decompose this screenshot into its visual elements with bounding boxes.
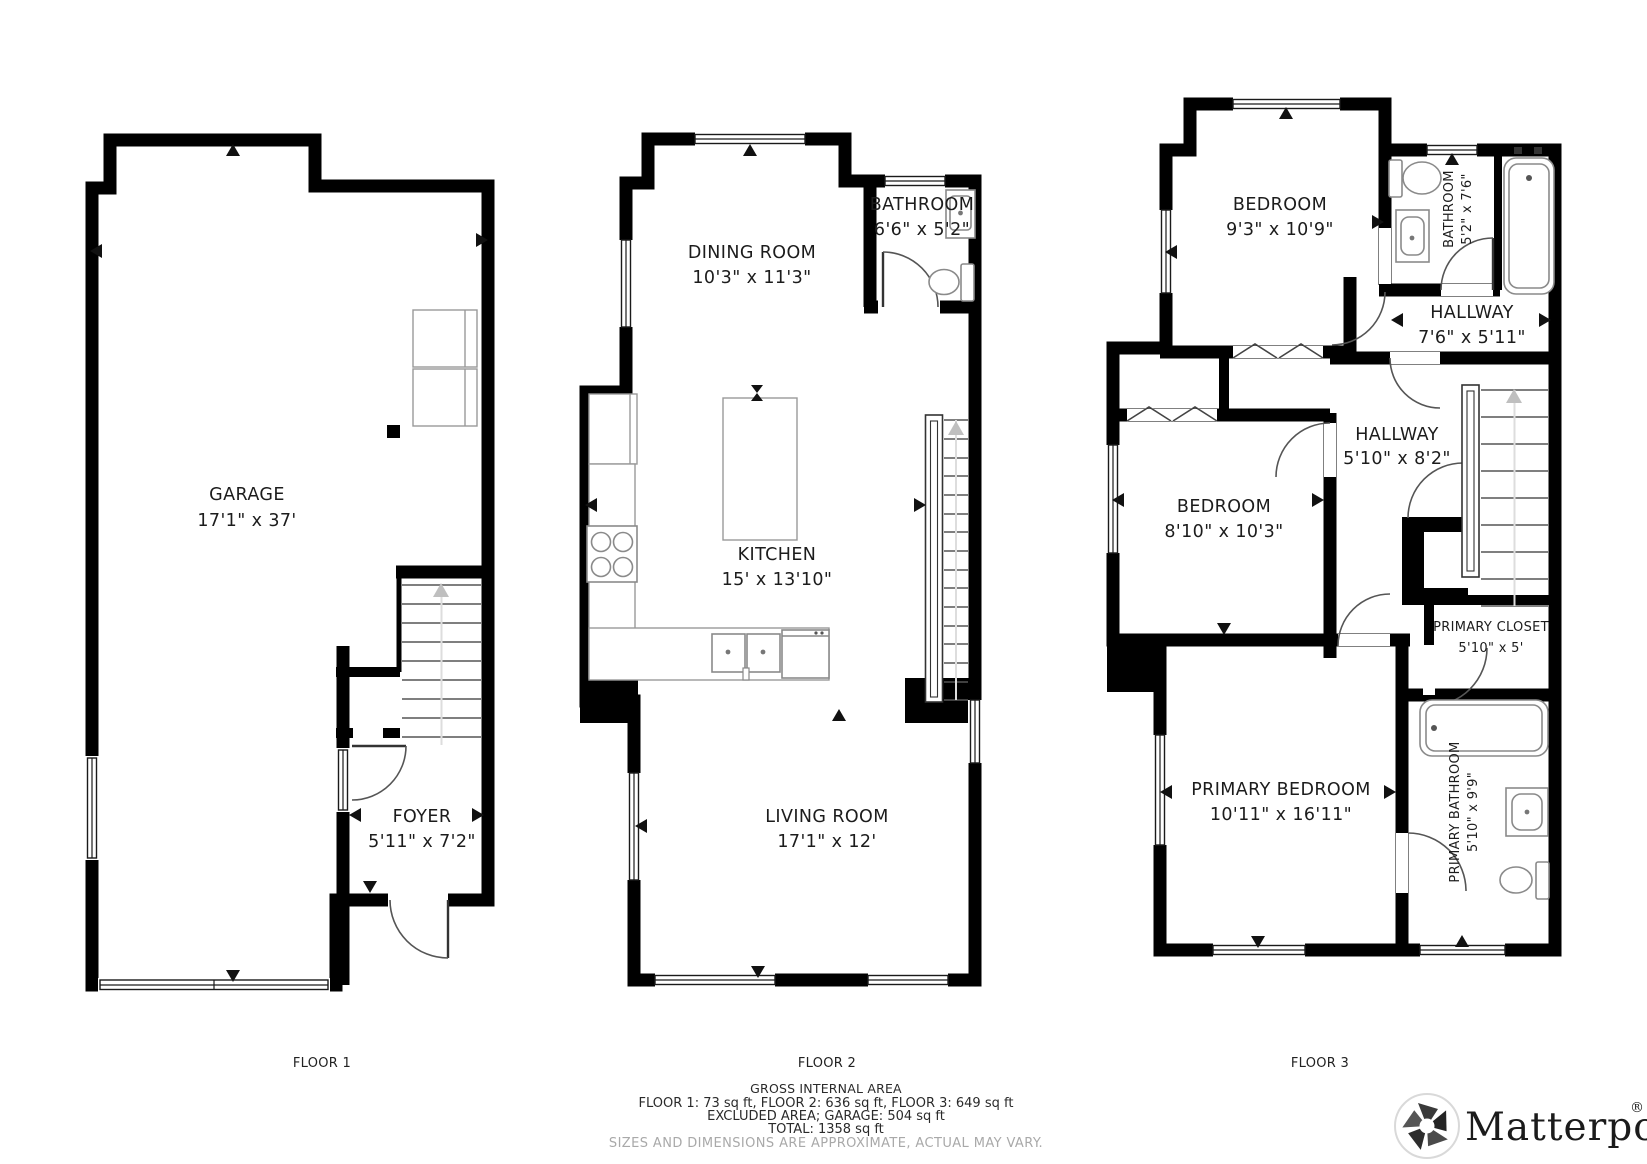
kitchen-dims: 15' x 13'10" — [722, 570, 833, 590]
toilet-icon — [1389, 160, 1441, 197]
matterport-logo-icon — [1395, 1094, 1459, 1158]
window-glyph — [971, 700, 980, 763]
dining-room-dims: 10'3" x 11'3" — [692, 268, 811, 288]
closet-opening — [1127, 409, 1217, 421]
window-glyph — [695, 135, 805, 144]
hallway2-label: HALLWAY — [1355, 425, 1438, 445]
hallway2-dims: 5'10" x 8'2" — [1343, 449, 1451, 469]
living-room-label: LIVING ROOM — [765, 807, 888, 827]
matterport-logo: Matterport ® — [1395, 1094, 1647, 1158]
door-opening — [1390, 352, 1440, 364]
stairs-icon — [402, 583, 481, 745]
primary-closet-label: PRIMARY CLOSET — [1433, 620, 1549, 635]
registered-mark: ® — [1630, 1100, 1644, 1116]
wall-corner-chunk — [580, 675, 638, 723]
window-glyph — [88, 758, 97, 858]
stove-icon — [587, 526, 637, 582]
entry-door-opening — [388, 893, 448, 907]
matterport-wordmark: Matterport — [1465, 1105, 1647, 1150]
bathtub-icon — [1504, 147, 1554, 294]
dimension-arrows — [90, 144, 488, 982]
area-summary: GROSS INTERNAL AREA FLOOR 1: 73 sq ft, F… — [609, 1081, 1043, 1151]
door-opening — [1423, 645, 1435, 695]
floor3-plan: BEDROOM 9'3" x 10'9" BATHROOM 5'2" x 7'6… — [1106, 97, 1555, 957]
door-swing — [1408, 463, 1463, 518]
window-glyph — [655, 976, 775, 985]
bathroom2-dims: 6'6" x 5'2" — [874, 220, 970, 240]
primary-bedroom-dims: 10'11" x 16'11" — [1210, 805, 1352, 825]
door-opening — [1396, 833, 1408, 893]
primary-bedroom-label: PRIMARY BEDROOM — [1191, 780, 1371, 800]
floorplan-page: GARAGE 17'1" x 37' FOYER 5'11" x 7'2" — [0, 0, 1647, 1164]
kitchen-label: KITCHEN — [738, 545, 817, 565]
stairs-icon — [1462, 385, 1548, 606]
toilet-icon — [929, 264, 974, 301]
floor1-plan: GARAGE 17'1" x 37' FOYER 5'11" x 7'2" — [85, 140, 494, 992]
bathroom3-dims: 5'2" x 7'6" — [1460, 173, 1475, 244]
garage-label: GARAGE — [209, 485, 285, 505]
closet-door-opening — [353, 727, 383, 739]
summary-title: GROSS INTERNAL AREA — [750, 1081, 902, 1096]
door-swing — [1276, 423, 1330, 477]
foyer-label: FOYER — [393, 807, 452, 827]
hallway1-label: HALLWAY — [1430, 303, 1513, 323]
primary-closet-dims: 5'10" x 5' — [1458, 641, 1523, 656]
wall-outline — [92, 140, 488, 985]
hallway1-dims: 7'6" x 5'11" — [1418, 328, 1526, 348]
bathroom-door-opening — [878, 301, 940, 314]
closet-opening — [1233, 346, 1323, 358]
bedroom1-label: BEDROOM — [1233, 195, 1327, 215]
bedroom2-label: BEDROOM — [1177, 497, 1271, 517]
summary-disclaimer: SIZES AND DIMENSIONS ARE APPROXIMATE, AC… — [609, 1136, 1043, 1151]
primary-bathroom-dims: 5'10" x 9'9" — [1466, 772, 1481, 852]
garage-dims: 17'1" x 37' — [197, 511, 296, 531]
window-glyph — [868, 976, 948, 985]
foyer-dims: 5'11" x 7'2" — [368, 832, 476, 852]
kitchen-island — [723, 398, 797, 540]
garage-door-glyph — [100, 980, 328, 990]
primary-bathroom-label: PRIMARY BATHROOM — [1448, 741, 1463, 882]
floor2-caption: FLOOR 2 — [798, 1056, 856, 1071]
summary-total: TOTAL: 1358 sq ft — [767, 1122, 884, 1137]
window-glyph — [1156, 735, 1165, 845]
floor-plan-canvas: GARAGE 17'1" x 37' FOYER 5'11" x 7'2" — [0, 0, 1647, 1164]
door-swing — [352, 746, 406, 800]
window-glyph — [885, 177, 945, 186]
fridge-icon — [589, 394, 637, 464]
bathroom2-label: BATHROOM — [870, 195, 974, 215]
sink-icon — [1396, 210, 1429, 262]
bedroom1-dims: 9'3" x 10'9" — [1226, 220, 1334, 240]
stairs-icon — [926, 415, 969, 702]
bathtub-icon — [1420, 700, 1548, 756]
door-opening — [1441, 284, 1493, 296]
dining-room-label: DINING ROOM — [688, 243, 816, 263]
dishwasher-icon — [782, 630, 829, 678]
garage-storage-units — [387, 310, 477, 438]
door-swing — [1390, 358, 1440, 408]
floor3-caption: FLOOR 3 — [1291, 1056, 1349, 1071]
living-room-dims: 17'1" x 12' — [777, 832, 876, 852]
door-opening — [1379, 228, 1391, 284]
window-glyph — [339, 750, 348, 810]
entry-door-swing — [390, 900, 448, 958]
toilet-icon — [1500, 862, 1549, 899]
door-swing — [1332, 292, 1385, 345]
floor1-caption: FLOOR 1 — [293, 1056, 351, 1071]
bedroom2-dims: 8'10" x 10'3" — [1164, 522, 1283, 542]
window-glyph — [622, 240, 631, 327]
window-glyph — [1213, 946, 1305, 955]
door-opening — [1338, 634, 1390, 646]
floor-captions: FLOOR 1 FLOOR 2 FLOOR 3 — [293, 1056, 1349, 1071]
window-glyph — [1233, 100, 1340, 109]
bathroom3-label: BATHROOM — [1442, 170, 1457, 248]
floor2-plan: DINING ROOM 10'3" x 11'3" BATHROOM 6'6" … — [580, 132, 982, 987]
sink-icon — [1506, 788, 1548, 836]
door-opening — [1324, 423, 1336, 477]
